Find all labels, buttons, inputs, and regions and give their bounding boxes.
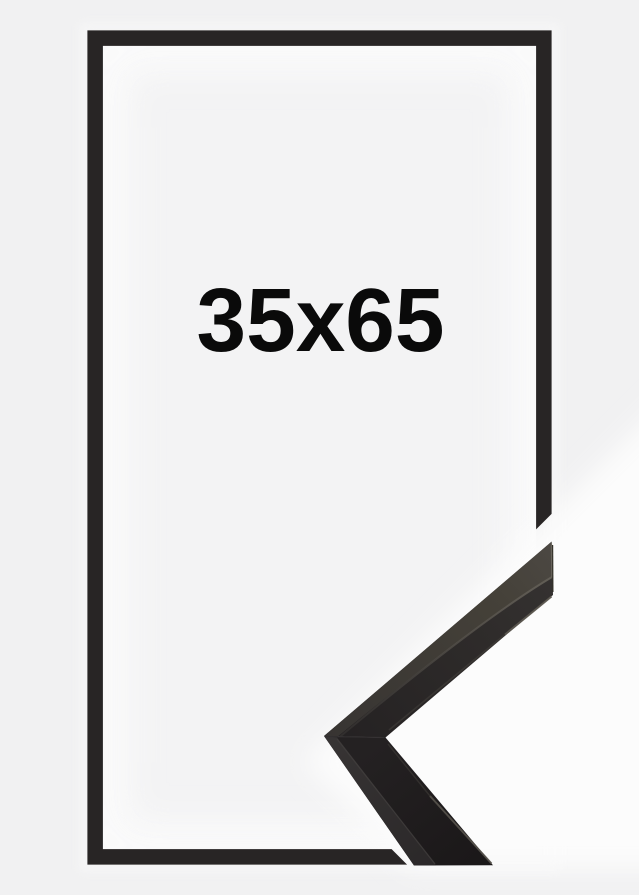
svg-text:35x65: 35x65 (197, 271, 445, 371)
